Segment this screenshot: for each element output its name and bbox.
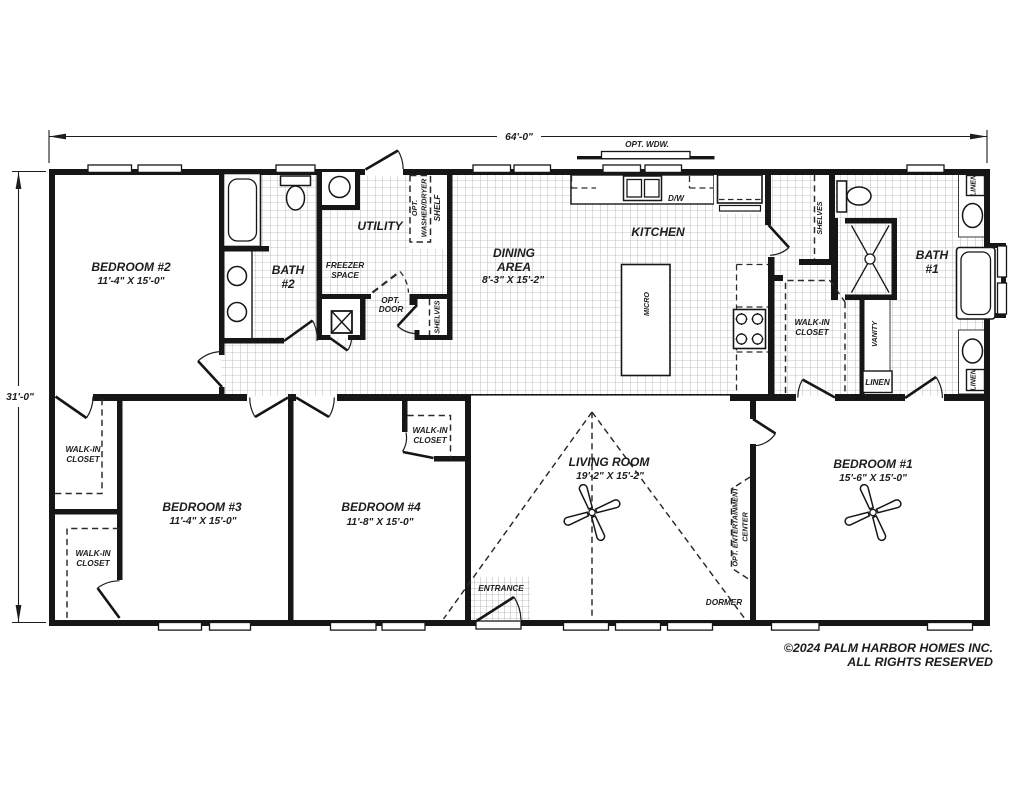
svg-text:OPT. ENTERTAINMENT: OPT. ENTERTAINMENT [731, 487, 740, 567]
svg-text:8'-3" X 15'-2": 8'-3" X 15'-2" [482, 275, 544, 286]
svg-text:ENTRANCE: ENTRANCE [478, 584, 524, 593]
svg-text:19'-2" X 15'-2": 19'-2" X 15'-2" [576, 471, 644, 482]
svg-text:CLOSET: CLOSET [795, 328, 829, 337]
svg-text:LINEN: LINEN [969, 368, 978, 390]
svg-text:15'-6" X 15'-0": 15'-6" X 15'-0" [839, 473, 907, 484]
svg-text:UTILITY: UTILITY [357, 219, 403, 233]
svg-text:WALK-IN: WALK-IN [65, 445, 101, 454]
svg-text:11'-8" X 15'-0": 11'-8" X 15'-0" [347, 517, 414, 528]
svg-text:CLOSET: CLOSET [413, 436, 447, 445]
svg-text:LIVING ROOM: LIVING ROOM [569, 455, 651, 469]
svg-text:WALK-IN: WALK-IN [412, 426, 448, 435]
svg-text:©2024 PALM HARBOR HOMES INC.: ©2024 PALM HARBOR HOMES INC. [784, 641, 993, 655]
svg-text:64'-0": 64'-0" [505, 132, 533, 143]
svg-text:CLOSET: CLOSET [76, 559, 110, 568]
svg-text:SHELVES: SHELVES [433, 300, 442, 333]
svg-text:WASHER/DRYER: WASHER/DRYER [420, 178, 429, 237]
svg-text:DORMER: DORMER [706, 598, 742, 607]
svg-text:11'-4" X 15'-0": 11'-4" X 15'-0" [170, 516, 237, 527]
svg-text:SPACE: SPACE [331, 271, 359, 280]
svg-text:11'-4" X 15'-0": 11'-4" X 15'-0" [98, 276, 165, 287]
svg-text:FREEZER: FREEZER [326, 261, 364, 270]
svg-text:OPT.: OPT. [410, 200, 419, 216]
svg-text:BATH: BATH [916, 248, 949, 262]
svg-text:BATH: BATH [272, 263, 305, 277]
svg-text:#2: #2 [281, 277, 295, 291]
svg-text:AREA: AREA [496, 260, 531, 274]
svg-text:SHELF: SHELF [433, 194, 442, 222]
svg-text:D/W: D/W [668, 194, 685, 203]
svg-text:BEDROOM #2: BEDROOM #2 [91, 260, 171, 274]
svg-text:LINEN: LINEN [969, 174, 978, 196]
svg-text:KITCHEN: KITCHEN [631, 225, 685, 239]
svg-text:BEDROOM #4: BEDROOM #4 [341, 500, 421, 514]
svg-text:CENTER: CENTER [741, 511, 750, 541]
svg-text:CLOSET: CLOSET [66, 455, 100, 464]
svg-text:ALL RIGHTS RESERVED: ALL RIGHTS RESERVED [846, 655, 993, 669]
svg-text:OPT. WDW.: OPT. WDW. [625, 140, 669, 149]
svg-text:BEDROOM #1: BEDROOM #1 [833, 457, 913, 471]
svg-text:LINEN: LINEN [865, 378, 891, 387]
svg-text:OPT.: OPT. [381, 296, 400, 305]
svg-text:DOOR: DOOR [379, 305, 404, 314]
svg-text:BEDROOM #3: BEDROOM #3 [162, 500, 242, 514]
svg-text:WALK-IN: WALK-IN [75, 549, 111, 558]
svg-text:#1: #1 [925, 262, 939, 276]
svg-text:VANITY: VANITY [870, 320, 879, 347]
svg-text:31'-0": 31'-0" [6, 392, 34, 403]
svg-text:SHELVES: SHELVES [815, 201, 824, 234]
svg-text:MICRO: MICRO [642, 292, 651, 316]
svg-text:WALK-IN: WALK-IN [794, 318, 830, 327]
svg-text:DINING: DINING [493, 246, 535, 260]
